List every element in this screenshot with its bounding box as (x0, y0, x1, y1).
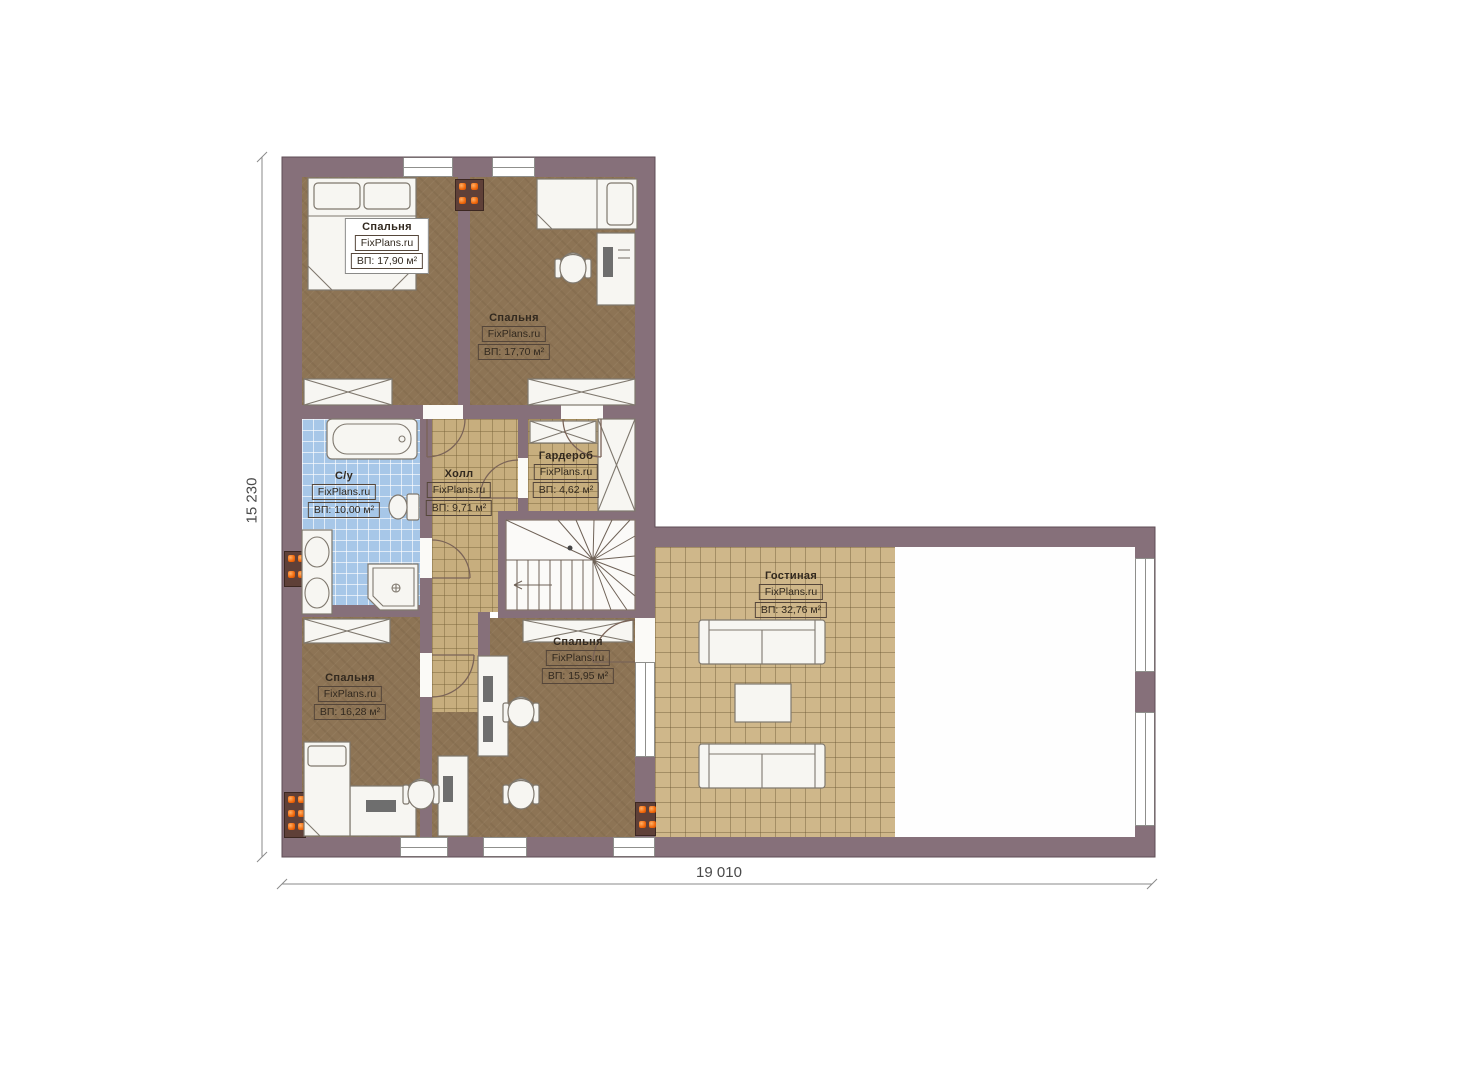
room-label-bathroom: С/у FixPlans.ru ВП: 10,00 м² (308, 470, 380, 518)
wall-bed1-bed2 (458, 177, 470, 405)
radiator-marker-top (455, 179, 484, 211)
brand-watermark: FixPlans.ru (312, 484, 377, 500)
floor-plan-canvas: Спальня FixPlans.ru ВП: 17,90 м² Спальня… (0, 0, 1474, 1080)
wall-stairs-top (505, 511, 635, 520)
brand-watermark: FixPlans.ru (355, 235, 420, 251)
room-area: ВП: 32,76 м² (755, 602, 827, 618)
window-top-1 (403, 157, 453, 177)
room-name: Холл (445, 468, 474, 480)
brand-watermark: FixPlans.ru (534, 464, 599, 480)
room-name: Спальня (553, 636, 603, 648)
brand-watermark: FixPlans.ru (318, 686, 383, 702)
room-area: ВП: 17,90 м² (351, 253, 423, 269)
bedroom-4-floor (302, 617, 420, 837)
room-area: ВП: 15,95 м² (542, 668, 614, 684)
room-label-wardrobe: Гардероб FixPlans.ru ВП: 4,62 м² (533, 450, 599, 498)
window-bottom-1 (400, 837, 448, 857)
window-bottom-2 (483, 837, 527, 857)
door-gap-bathroom (420, 538, 432, 578)
radiator-marker-bath (284, 551, 306, 587)
room-area: ВП: 16,28 м² (314, 704, 386, 720)
room-label-living-room: Гостиная FixPlans.ru ВП: 32,76 м² (755, 570, 827, 618)
hall-floor-strip (432, 612, 478, 712)
window-living-right-2 (1135, 712, 1155, 826)
brand-watermark: FixPlans.ru (759, 584, 824, 600)
door-gap-bedroom-4 (420, 653, 432, 697)
room-area: ВП: 9,71 м² (426, 500, 492, 516)
window-top-2 (492, 157, 535, 177)
dimension-vertical: 15 230 (244, 471, 261, 531)
brand-watermark: FixPlans.ru (427, 482, 492, 498)
room-name: Спальня (489, 312, 539, 324)
wall-corridor-right (420, 612, 432, 837)
wall-living-top (655, 527, 1155, 547)
room-name: Спальня (325, 672, 375, 684)
dimension-horizontal: 19 010 (680, 864, 758, 881)
wall-stairs-bottom (498, 610, 635, 618)
bedroom-2-floor (470, 177, 635, 405)
wall-top (282, 157, 655, 177)
room-label-bedroom-3: Спальня FixPlans.ru ВП: 15,95 м² (542, 636, 614, 684)
room-area: ВП: 4,62 м² (533, 482, 599, 498)
window-living-right-1 (1135, 558, 1155, 672)
wall-bed3-left (478, 612, 490, 712)
room-label-bedroom-2: Спальня FixPlans.ru ВП: 17,70 м² (478, 312, 550, 360)
radiator-marker-bed4 (284, 792, 306, 838)
room-name: Гостиная (765, 570, 817, 582)
living-room-floor-plain (895, 547, 1135, 837)
bedroom-3-floor-ext (432, 712, 490, 837)
window-bottom-3 (613, 837, 655, 857)
stairs-floor (506, 520, 635, 610)
wall-left (282, 157, 302, 857)
bedroom-1-floor (302, 177, 458, 405)
wall-right-upper-block (635, 157, 655, 547)
radiator-marker-bed3 (635, 802, 656, 836)
wall-bath-bed4 (302, 605, 420, 617)
door-gap-bedroom-2 (561, 405, 603, 419)
brand-watermark: FixPlans.ru (546, 650, 611, 666)
brand-watermark: FixPlans.ru (482, 326, 547, 342)
door-gap-wardrobe (518, 458, 528, 498)
room-area: ВП: 17,70 м² (478, 344, 550, 360)
wall-stairs-left (498, 511, 506, 612)
room-label-bedroom-4: Спальня FixPlans.ru ВП: 16,28 м² (314, 672, 386, 720)
room-name: Спальня (362, 221, 412, 233)
room-name: Гардероб (539, 450, 593, 462)
room-area: ВП: 10,00 м² (308, 502, 380, 518)
door-gap-bedroom-1 (423, 405, 463, 419)
opening-bed3-living (635, 662, 655, 757)
room-label-hall: Холл FixPlans.ru ВП: 9,71 м² (426, 468, 492, 516)
room-name: С/у (335, 470, 353, 482)
room-label-bedroom-1: Спальня FixPlans.ru ВП: 17,90 м² (345, 218, 429, 274)
door-gap-bedroom-3 (635, 618, 655, 662)
hall-floor-mid (432, 511, 498, 612)
